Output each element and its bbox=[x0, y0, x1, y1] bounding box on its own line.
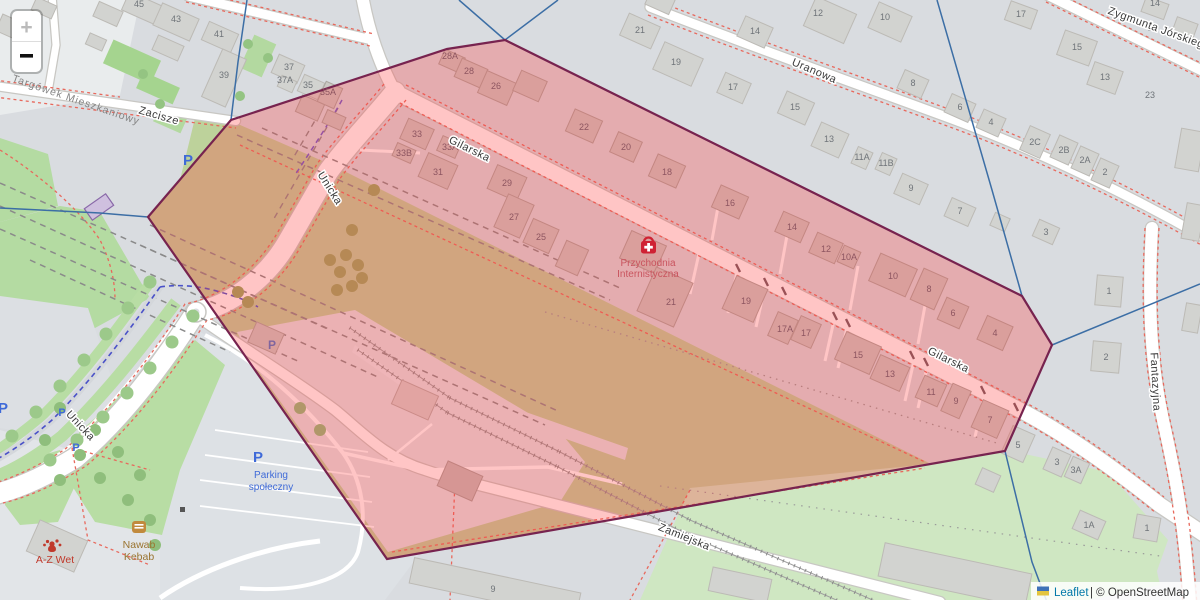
svg-text:7: 7 bbox=[987, 415, 992, 425]
svg-text:P: P bbox=[0, 400, 8, 417]
svg-text:10: 10 bbox=[888, 271, 898, 281]
svg-text:20: 20 bbox=[621, 142, 631, 152]
svg-text:13: 13 bbox=[824, 134, 834, 144]
svg-text:41: 41 bbox=[214, 29, 224, 39]
svg-text:29: 29 bbox=[502, 178, 512, 188]
svg-text:1: 1 bbox=[1144, 523, 1149, 533]
svg-text:Kebab: Kebab bbox=[124, 551, 155, 563]
svg-text:P: P bbox=[253, 449, 263, 466]
svg-text:4: 4 bbox=[992, 328, 997, 338]
svg-text:16: 16 bbox=[725, 198, 735, 208]
svg-text:2: 2 bbox=[1103, 352, 1108, 362]
svg-text:8: 8 bbox=[926, 284, 931, 294]
svg-text:31: 31 bbox=[433, 167, 443, 177]
svg-text:33: 33 bbox=[412, 129, 422, 139]
svg-text:17: 17 bbox=[1016, 9, 1026, 19]
svg-text:11: 11 bbox=[926, 387, 935, 397]
svg-text:6: 6 bbox=[950, 308, 955, 318]
svg-text:10: 10 bbox=[880, 12, 890, 22]
svg-text:2B: 2B bbox=[1058, 145, 1069, 155]
svg-text:37A: 37A bbox=[277, 75, 293, 85]
svg-text:21: 21 bbox=[666, 297, 676, 307]
svg-text:2C: 2C bbox=[1029, 137, 1041, 147]
svg-text:6: 6 bbox=[957, 102, 962, 112]
svg-text:P: P bbox=[58, 407, 65, 419]
svg-text:10A: 10A bbox=[841, 252, 857, 262]
svg-text:23: 23 bbox=[1145, 90, 1155, 100]
svg-text:33B: 33B bbox=[396, 148, 412, 158]
svg-text:Parking: Parking bbox=[254, 470, 288, 481]
svg-text:9: 9 bbox=[908, 183, 913, 193]
svg-text:15: 15 bbox=[853, 350, 863, 360]
svg-text:15: 15 bbox=[790, 102, 800, 112]
svg-text:4: 4 bbox=[988, 117, 993, 127]
svg-text:45: 45 bbox=[134, 0, 144, 9]
svg-text:5: 5 bbox=[1015, 440, 1020, 450]
svg-text:3: 3 bbox=[1054, 457, 1059, 467]
svg-text:9: 9 bbox=[490, 584, 495, 594]
svg-text:11B: 11B bbox=[878, 158, 893, 168]
svg-text:Internistyczna: Internistyczna bbox=[617, 269, 679, 280]
svg-text:28: 28 bbox=[464, 66, 474, 76]
svg-text:43: 43 bbox=[171, 14, 181, 24]
svg-text:11A: 11A bbox=[854, 152, 869, 162]
svg-text:17: 17 bbox=[801, 328, 811, 338]
svg-text:13: 13 bbox=[885, 369, 895, 379]
svg-text:A-Z Wet: A-Z Wet bbox=[36, 554, 74, 566]
svg-text:18: 18 bbox=[662, 167, 672, 177]
svg-text:3A: 3A bbox=[1070, 465, 1081, 475]
svg-text:| © OpenStreetMap: | © OpenStreetMap bbox=[1090, 587, 1189, 599]
svg-text:19: 19 bbox=[741, 296, 751, 306]
svg-text:12: 12 bbox=[813, 8, 823, 18]
svg-text:26: 26 bbox=[491, 81, 501, 91]
svg-text:2: 2 bbox=[1102, 167, 1107, 177]
svg-text:27: 27 bbox=[509, 212, 519, 222]
svg-text:P: P bbox=[183, 152, 193, 169]
svg-text:22: 22 bbox=[579, 122, 589, 132]
svg-text:17: 17 bbox=[728, 82, 738, 92]
svg-text:1: 1 bbox=[1106, 286, 1111, 296]
svg-text:15: 15 bbox=[1072, 42, 1082, 52]
svg-text:P: P bbox=[72, 442, 79, 454]
svg-text:9: 9 bbox=[953, 396, 958, 406]
svg-text:19: 19 bbox=[671, 57, 681, 67]
svg-text:8: 8 bbox=[910, 78, 915, 88]
svg-text:Nawab: Nawab bbox=[123, 539, 156, 551]
svg-text:3: 3 bbox=[1043, 227, 1048, 237]
svg-text:Przychodnia: Przychodnia bbox=[620, 258, 675, 269]
svg-text:1A: 1A bbox=[1083, 520, 1094, 530]
svg-text:17A: 17A bbox=[777, 324, 793, 334]
svg-text:35: 35 bbox=[303, 80, 313, 90]
svg-text:21: 21 bbox=[635, 25, 645, 35]
svg-text:Leaflet: Leaflet bbox=[1054, 587, 1089, 599]
svg-text:14: 14 bbox=[750, 26, 760, 36]
svg-text:39: 39 bbox=[219, 70, 229, 80]
svg-text:28A: 28A bbox=[442, 51, 458, 61]
svg-text:społeczny: społeczny bbox=[249, 482, 293, 493]
svg-text:12: 12 bbox=[821, 244, 831, 254]
svg-text:37: 37 bbox=[284, 62, 294, 72]
svg-text:7: 7 bbox=[957, 206, 962, 216]
svg-text:2A: 2A bbox=[1079, 155, 1090, 165]
svg-text:+: + bbox=[20, 16, 32, 39]
svg-text:14: 14 bbox=[787, 222, 797, 232]
svg-text:35A: 35A bbox=[320, 87, 336, 97]
svg-text:13: 13 bbox=[1100, 72, 1110, 82]
svg-text:14: 14 bbox=[1150, 0, 1160, 8]
svg-text:25: 25 bbox=[536, 232, 546, 242]
